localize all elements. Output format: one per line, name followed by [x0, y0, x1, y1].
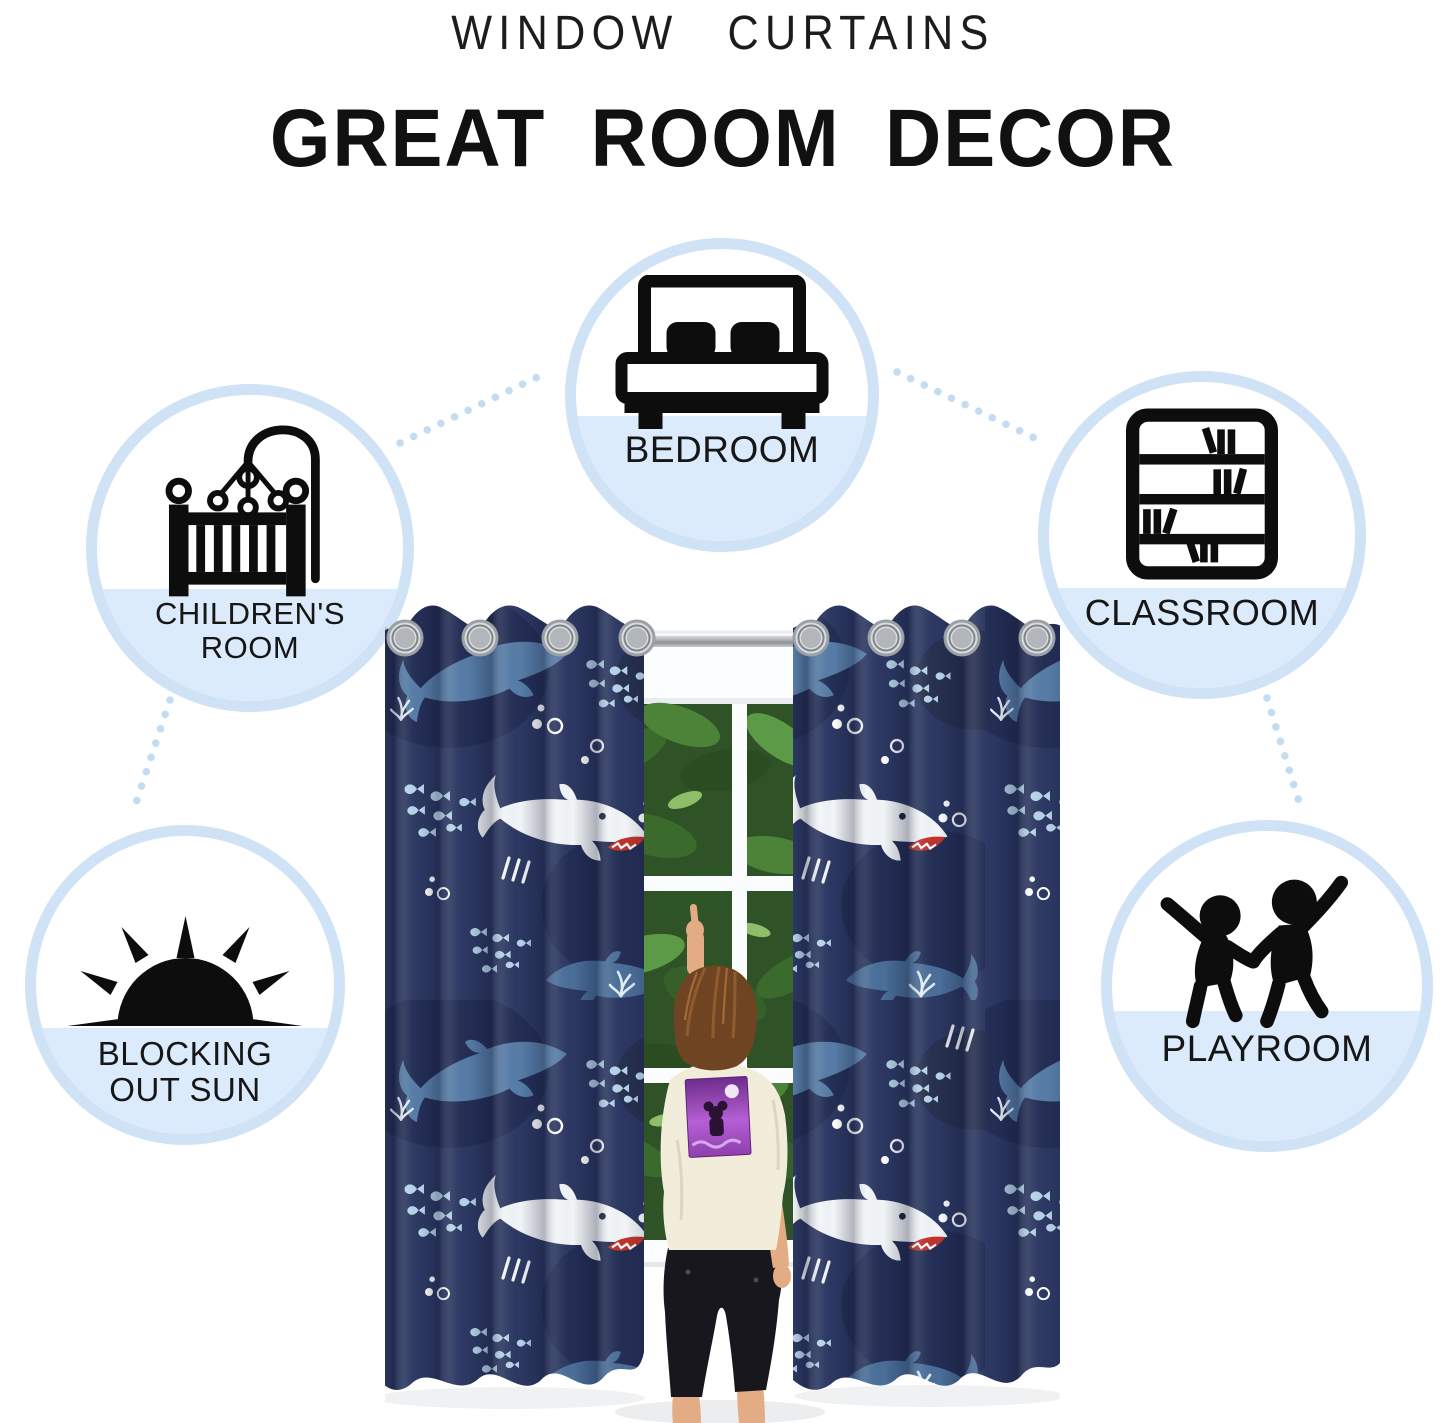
- feature-childrens-room: CHILDREN'S ROOM: [86, 384, 414, 712]
- children-playing-icon: [1149, 865, 1385, 1031]
- bookshelf-icon: [1126, 408, 1278, 580]
- shirt-print: [685, 1076, 751, 1157]
- feature-blocking-out-sun: BLOCKING OUT SUN: [25, 825, 345, 1145]
- feature-playroom: PLAYROOM: [1101, 820, 1433, 1152]
- feature-bedroom-label: BEDROOM: [625, 430, 820, 471]
- curtain-panel-right: [793, 606, 1060, 1390]
- feature-childrens-label-line2: ROOM: [201, 631, 299, 665]
- feature-sun-label-area: BLOCKING OUT SUN: [36, 1028, 334, 1134]
- feature-playroom-label: PLAYROOM: [1162, 1029, 1373, 1070]
- floor-shadow: [385, 1385, 1060, 1423]
- feature-bedroom: BEDROOM: [565, 238, 879, 552]
- curtain-panel-left: [385, 606, 654, 1390]
- connector-bedroom-classroom: [897, 372, 1045, 443]
- connector-classroom-playroom: [1267, 698, 1300, 805]
- crib-icon: [148, 409, 353, 607]
- feature-sun-label-line2: OUT SUN: [109, 1072, 260, 1108]
- product-photo: [385, 600, 1060, 1423]
- feature-classroom-label: CLASSROOM: [1085, 593, 1320, 633]
- feature-sun-label: BLOCKING: [98, 1036, 273, 1072]
- feature-classroom-label-area: CLASSROOM: [1049, 588, 1355, 688]
- product-infographic: WINDOW CURTAINS GREAT ROOM DECOR BEDROOM: [0, 0, 1445, 1423]
- bed-icon: [615, 275, 830, 435]
- connector-childrens-sun: [136, 700, 170, 803]
- sun-icon: [66, 914, 304, 1036]
- child-pants: [664, 1248, 782, 1397]
- connector-childrens-bedroom: [400, 372, 548, 443]
- feature-classroom: CLASSROOM: [1038, 371, 1366, 699]
